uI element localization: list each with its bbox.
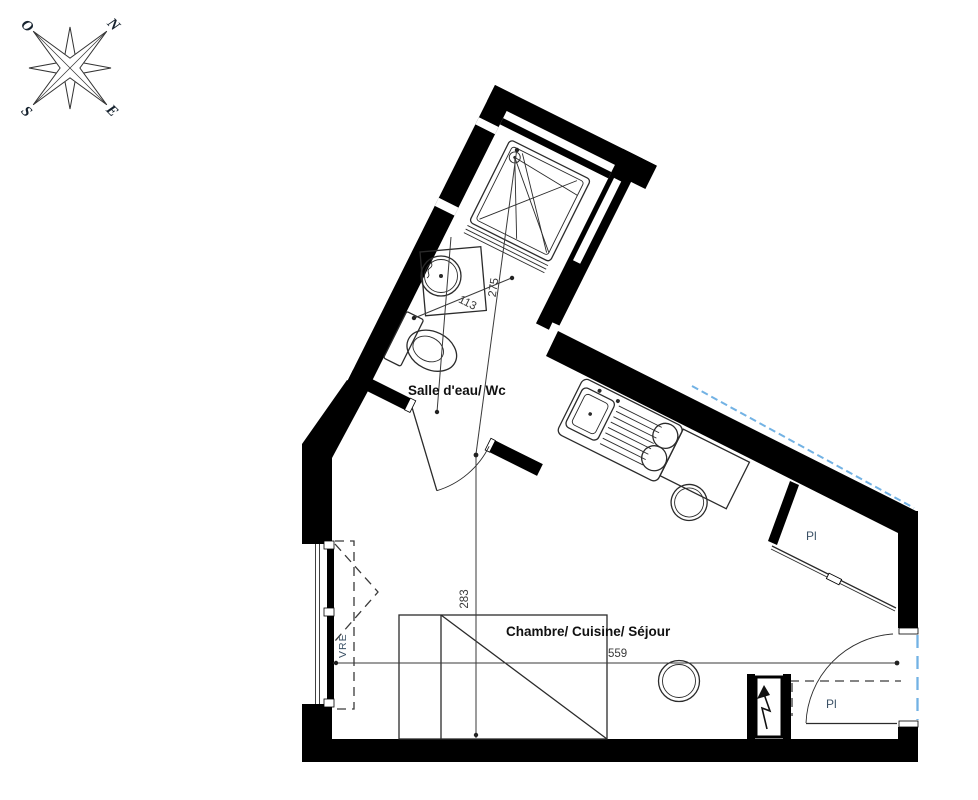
door-frame bbox=[899, 628, 918, 634]
faucet-icon bbox=[615, 398, 620, 403]
svg-text:275: 275 bbox=[487, 277, 502, 298]
dimension-main-width: 559 bbox=[333, 648, 899, 665]
cooktop bbox=[637, 419, 682, 475]
bathroom-label: Salle d'eau/ Wc bbox=[408, 383, 506, 398]
window-handle-icon bbox=[324, 699, 334, 707]
dimension-bathroom-length: 275 bbox=[476, 148, 519, 454]
svg-text:559: 559 bbox=[608, 648, 627, 660]
sliding-door-handle-icon bbox=[826, 573, 841, 585]
right-bottom-stub bbox=[898, 727, 918, 741]
side-table bbox=[659, 661, 700, 702]
window-bottom-block bbox=[302, 704, 332, 742]
entry-door-swing bbox=[806, 634, 893, 723]
window-handle-icon bbox=[324, 608, 334, 616]
water-heater bbox=[665, 478, 713, 526]
wall-insulation-stripe bbox=[573, 178, 621, 264]
window-leaf bbox=[327, 546, 334, 702]
floor-plan-page: N E S O bbox=[0, 0, 978, 800]
shutter-dashed-box bbox=[335, 541, 354, 709]
bottom-wall bbox=[302, 739, 918, 762]
floor-plan-svg: N E S O bbox=[0, 0, 978, 800]
main-room-label: Chambre/ Cuisine/ Séjour bbox=[506, 624, 671, 639]
right-wall bbox=[898, 511, 918, 628]
compass-east-label: E bbox=[102, 101, 121, 120]
door-frame bbox=[899, 721, 918, 727]
svg-text:113: 113 bbox=[456, 294, 478, 313]
closet-upper-label: Pl bbox=[806, 529, 817, 543]
dimension-main-depth: 283 bbox=[459, 453, 478, 738]
exterior-blue-line bbox=[692, 386, 914, 508]
closet-partition bbox=[768, 481, 799, 545]
casement-swing-dashed bbox=[335, 544, 378, 641]
closet-lower: Pl bbox=[790, 681, 901, 716]
compass-west-label: O bbox=[17, 17, 36, 36]
bathroom-door bbox=[384, 408, 489, 503]
window-handle-icon bbox=[324, 541, 334, 549]
window-vre-label: VRE bbox=[337, 633, 349, 658]
compass-south-label: S bbox=[18, 103, 35, 120]
closet-lower-label: Pl bbox=[826, 697, 837, 711]
compass-rose: N E S O bbox=[0, 0, 165, 163]
window-vre: VRE bbox=[316, 541, 379, 709]
window-top-block bbox=[302, 520, 332, 544]
electrical-panel bbox=[747, 674, 791, 739]
entry-door bbox=[806, 634, 918, 724]
svg-text:283: 283 bbox=[459, 589, 471, 608]
